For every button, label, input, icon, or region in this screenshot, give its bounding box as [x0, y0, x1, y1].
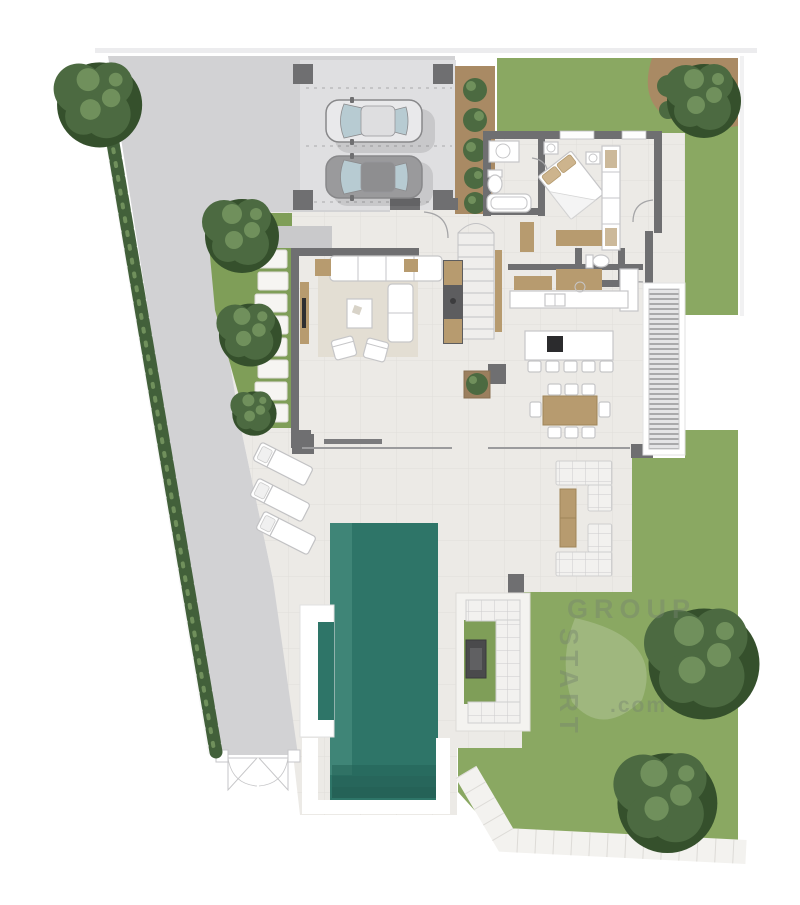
- slatted-deck: [643, 283, 685, 455]
- powder-room: [586, 255, 609, 268]
- dining-table: [543, 396, 597, 425]
- watermark-start: START: [554, 628, 584, 738]
- floor-plan-drawing: GROUP START .com: [0, 0, 800, 905]
- stair-screen: [495, 250, 502, 332]
- indoor-planter: [464, 371, 490, 398]
- outdoor-sofa: [556, 552, 612, 576]
- plot-right-border: [740, 56, 744, 316]
- watermark-group: GROUP: [567, 594, 696, 624]
- hall-cabinet: [520, 222, 534, 252]
- floor-plan-canvas: GROUP START .com: [0, 0, 800, 905]
- kitchen-island: [525, 331, 613, 360]
- plot-top-border: [95, 48, 757, 53]
- feature-wall: [443, 260, 463, 344]
- upper-cabinet: [514, 276, 552, 290]
- outdoor-sofa: [556, 461, 612, 485]
- cooktop: [547, 336, 563, 352]
- hall-closet: [556, 230, 602, 246]
- toilet-bowl: [488, 175, 502, 193]
- car-silver: [326, 97, 422, 145]
- watermark-dotcom: .com: [610, 694, 667, 717]
- toilet-tank: [586, 255, 593, 268]
- upper-cabinet: [556, 269, 602, 290]
- sofa-pillow: [404, 259, 418, 272]
- car-gray: [326, 153, 422, 201]
- kitchen-counter: [510, 291, 628, 308]
- side-table: [315, 259, 331, 276]
- tv-screen: [302, 298, 306, 328]
- fire-pit-lounge: [456, 593, 530, 731]
- toilet-bowl: [593, 255, 609, 267]
- bar-stools: [528, 361, 613, 372]
